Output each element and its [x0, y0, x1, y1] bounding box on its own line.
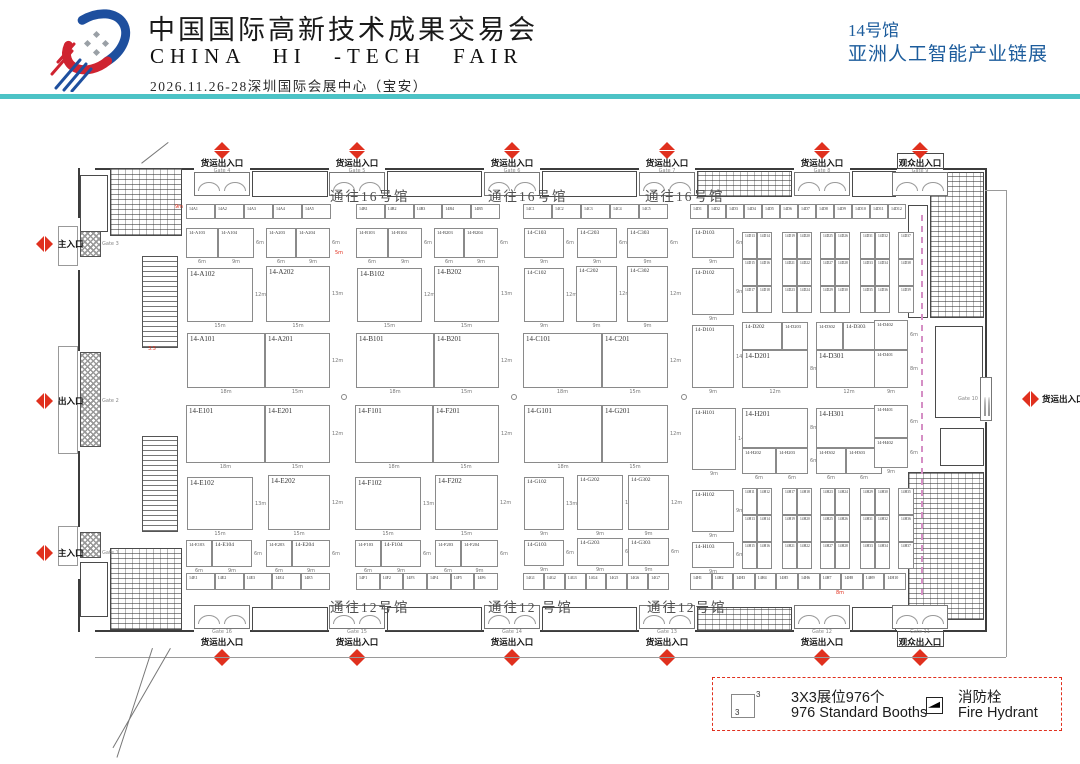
gate-marker-gate-16 [214, 649, 230, 666]
booth-label: 14-E203 [269, 542, 285, 547]
booth-14D37: 14D37 [898, 232, 914, 259]
booth-label: 14D11 [873, 206, 884, 211]
booth-14H31: 14H31 [860, 515, 875, 542]
booth-14-H103: 14-H103 [692, 542, 734, 568]
fire-hydrant-icon [926, 697, 943, 714]
dimension-label: 9m [641, 531, 657, 537]
booth-14-C303: 14-C303 [627, 228, 668, 258]
booth-14-E102: 14-E102 [187, 477, 253, 530]
booth-14H24: 14H24 [835, 488, 850, 515]
booth-14D30: 14D30 [835, 286, 850, 313]
booth-label: 14H15 [745, 544, 755, 548]
room-topleft-lobby [80, 175, 108, 232]
booth-14-B204: 14-B204 [464, 228, 498, 258]
booth-label: 14B4 [445, 206, 454, 211]
booth-14D39: 14D39 [898, 286, 914, 313]
booth-14H34: 14H34 [875, 542, 890, 569]
dimension-label: 15m [459, 323, 475, 329]
booth-14F1: 14F1 [356, 573, 380, 590]
booth-label: 14-G303 [631, 540, 651, 546]
booth-14D5: 14D5 [762, 204, 780, 219]
booth-14-A202: 14-A202 [266, 266, 330, 322]
booth-14B4: 14B4 [442, 204, 471, 219]
booth-14H2: 14H2 [712, 573, 734, 590]
booth-14D31: 14D31 [860, 232, 875, 259]
dimension-label: 12m [670, 291, 681, 297]
red-dimension-label: 9m [175, 204, 183, 210]
dimension-label: 15m [380, 531, 396, 537]
booth-14-D203: 14-D203 [782, 322, 808, 350]
dimension-label: 9m [592, 531, 608, 537]
booth-14D19: 14D19 [782, 232, 797, 259]
wall-top-segment [695, 168, 794, 170]
dimension-label: 6m [619, 240, 627, 246]
booth-label: 14-A204 [299, 230, 315, 235]
booth-label: 14-D101 [695, 327, 715, 333]
booth-14H20: 14H20 [797, 515, 812, 542]
dimension-label: 13m [423, 501, 434, 507]
booth-label: 14-G102 [527, 479, 547, 485]
dimension-label: 15m [290, 389, 306, 395]
booth-label: 14H25 [823, 517, 833, 521]
booth-14-H202: 14-H202 [742, 448, 776, 474]
booth-14A3: 14A3 [244, 204, 273, 219]
booth-label: 14-A203 [269, 230, 285, 235]
booth-label: 14D39 [901, 288, 911, 292]
booth-label: 14H23 [823, 490, 833, 494]
booth-label: 14E5 [304, 575, 312, 580]
booth-label: 14H31 [863, 517, 873, 521]
booth-label: 14-C302 [630, 268, 649, 274]
booth-label: 14-A104 [221, 230, 237, 235]
booth-14D13: 14D13 [742, 232, 757, 259]
booth-label: 14-E101 [189, 407, 213, 415]
booth-14E3: 14E3 [244, 573, 273, 590]
booth-14F6: 14F6 [474, 573, 498, 590]
booth-label: 14D15 [745, 261, 755, 265]
booth-14A2: 14A2 [215, 204, 244, 219]
booth-label: 14-B204 [467, 230, 483, 235]
booth-label: 14H5 [779, 575, 788, 580]
booth-14H37: 14H37 [898, 542, 914, 569]
booth-14H17: 14H17 [782, 488, 797, 515]
booth-14-D201: 14-D201 [742, 350, 808, 388]
red-dimension-label: 8m [836, 590, 844, 596]
corridor-label: 通往12号馆 [330, 596, 410, 616]
booth-label: 14H21 [785, 544, 795, 548]
dimension-label: 18m [555, 389, 571, 395]
booth-14H5: 14H5 [776, 573, 798, 590]
booth-14D32: 14D32 [875, 232, 890, 259]
corridor-label: 通往12号馆 [647, 596, 727, 616]
booth-label: 14D28 [838, 261, 848, 265]
outer-dimension-line-bottom [95, 657, 1006, 658]
booth-label: 14D32 [878, 234, 888, 238]
booth-14H8: 14H8 [841, 573, 863, 590]
stairs-left-lower [142, 436, 178, 532]
booth-label: 14D36 [878, 288, 888, 292]
booth-14-B202: 14-B202 [434, 266, 499, 322]
booth-label: 14D16 [760, 261, 770, 265]
booth-label: 14-A201 [268, 335, 293, 343]
booth-label: 14C4 [613, 206, 622, 211]
dimension-label: 9m [536, 323, 552, 329]
booth-14H15: 14H15 [742, 542, 757, 569]
booth-label: 14D20 [800, 234, 810, 238]
booth-label: 14H1 [693, 575, 702, 580]
booth-label: 14-B203 [437, 230, 453, 235]
booth-14D8: 14D8 [816, 204, 834, 219]
booth-14-H302: 14-H302 [816, 448, 846, 474]
booth-14-C101: 14-C101 [523, 333, 602, 388]
booth-label: 14-H402 [877, 440, 893, 445]
booth-14H7: 14H7 [820, 573, 842, 590]
booth-label: 14H4 [758, 575, 767, 580]
booth-label: 14-G302 [631, 477, 651, 483]
booth-label: 14-H401 [877, 407, 893, 412]
booth-14-C202: 14-C202 [576, 266, 617, 322]
booth-label: 14-D302 [819, 324, 835, 329]
booth-label: 14B5 [474, 206, 483, 211]
gate-number-bottom: Gate 14 [492, 629, 532, 635]
dimension-label: 8m [910, 366, 918, 372]
room-bottomleft-lobby [80, 562, 108, 617]
room-bottom-5 [852, 607, 896, 631]
booth-14H12: 14H12 [757, 488, 772, 515]
booth-14A5: 14A5 [302, 204, 331, 219]
booth-label: 14-E201 [268, 407, 292, 415]
booth-label: 14D9 [837, 206, 846, 211]
structural-column [341, 394, 347, 400]
booth-14-G101: 14-G101 [524, 405, 602, 463]
booth-label: 14D8 [819, 206, 828, 211]
dimension-label: 12m [670, 431, 681, 437]
booth-label: 14E1 [189, 575, 197, 580]
booth-label: 14D37 [901, 234, 911, 238]
booth-label: 14E2 [218, 575, 226, 580]
booth-14-H203: 14-H203 [776, 448, 808, 474]
booth-14H16: 14H16 [757, 542, 772, 569]
booth-label: 14H29 [863, 490, 873, 494]
booth-14H28: 14H28 [835, 542, 850, 569]
booth-label: 14D29 [823, 288, 833, 292]
booth-label: 14-C103 [527, 230, 546, 236]
dimension-label: 12m [671, 500, 682, 506]
booth-14G2: 14G2 [544, 573, 565, 590]
booth-label: 14-H203 [779, 450, 795, 455]
booth-14-F101: 14-F101 [355, 405, 433, 463]
booth-label: 14D4 [747, 206, 756, 211]
dimension-label: 12m [501, 431, 512, 437]
dimension-label: 9m [397, 259, 413, 265]
booth-label: 14H18 [800, 490, 810, 494]
booth-label: 14A2 [218, 206, 227, 211]
booth-14-C201: 14-C201 [602, 333, 668, 388]
booth-14D10: 14D10 [852, 204, 870, 219]
booth-14-E201: 14-E201 [265, 405, 330, 463]
dimension-label: 13m [332, 291, 343, 297]
booth-label: 14H16 [760, 544, 770, 548]
gate-number-bottom: Gate 13 [647, 629, 687, 635]
booth-label: 14-B102 [360, 270, 385, 278]
dimension-label: 9m [640, 323, 656, 329]
booth-label: 14B2 [388, 206, 397, 211]
dimension-label: 12m [500, 500, 511, 506]
booth-14B1: 14B1 [356, 204, 385, 219]
booth-14-G103: 14-G103 [524, 540, 564, 566]
booth-14D16: 14D16 [757, 259, 772, 286]
booth-14D18: 14D18 [757, 286, 772, 313]
dimension-label: 9m [705, 389, 721, 395]
booth-label: 14-C203 [580, 230, 599, 236]
booth-14-B201: 14-B201 [434, 333, 499, 388]
booth-label: 14F1 [359, 575, 367, 580]
dimension-label: 6m [194, 259, 210, 265]
gate-label-bottom: 货运出入口 [319, 636, 395, 648]
booth-14D9: 14D9 [834, 204, 852, 219]
booth-14-H402: 14-H402 [874, 438, 908, 468]
booth-label: 14H28 [838, 544, 848, 548]
wall-left-segment [78, 270, 80, 351]
booth-14-G203: 14-G203 [577, 538, 623, 566]
booth-label: 14H36 [901, 517, 911, 521]
booth-14D12: 14D12 [888, 204, 906, 219]
booth-14-D402: 14-D402 [874, 320, 908, 350]
booth-14E2: 14E2 [215, 573, 244, 590]
booth-14-G201: 14-G201 [602, 405, 668, 463]
booth-14H6: 14H6 [798, 573, 820, 590]
booth-label: 14A5 [305, 206, 314, 211]
booth-14G7: 14G7 [648, 573, 669, 590]
booth-label: 14-C101 [526, 335, 551, 343]
legend-booths-en: 976 Standard Booths [791, 705, 927, 721]
dimension-label: 6m [910, 450, 918, 456]
dimension-label: 6m [364, 259, 380, 265]
booth-14D25: 14D25 [820, 232, 835, 259]
wall-bottom-segment [943, 630, 985, 632]
booth-14-A104: 14-A104 [218, 228, 254, 258]
booth-14D27: 14D27 [820, 259, 835, 286]
wall-top-segment [540, 168, 639, 170]
dimension-label: 9m [228, 259, 244, 265]
booth-label: 14-H201 [745, 410, 770, 418]
booth-14H29: 14H29 [860, 488, 875, 515]
room-right-mid2 [940, 428, 984, 466]
dimension-label: 15m [212, 323, 228, 329]
booth-label: 14H2 [715, 575, 724, 580]
booth-label: 14G6 [630, 575, 639, 580]
dimension-label: 15m [291, 531, 307, 537]
gate-marker-gate-1 [36, 545, 53, 561]
booth-label: 14-F103 [358, 542, 373, 547]
booth-label: 14-C303 [630, 230, 649, 236]
booth-label: 14-A102 [190, 270, 215, 278]
standard-booth-icon: 3 [731, 694, 755, 718]
booth-label: 14-D402 [877, 322, 893, 327]
booth-14-E101: 14-E101 [186, 405, 265, 463]
dimension-label: 9m [589, 323, 605, 329]
booth-label: 14-H303 [849, 450, 865, 455]
booth-14-C302: 14-C302 [627, 266, 668, 322]
booth-14-C203: 14-C203 [577, 228, 617, 258]
dimension-label: 9m [536, 531, 552, 537]
dimension-label: 12m [332, 358, 343, 364]
dimension-label: 13m [501, 291, 512, 297]
booth-14H21: 14H21 [782, 542, 797, 569]
booth-label: 14D34 [878, 261, 888, 265]
booth-label: 14D10 [855, 206, 866, 211]
booth-label: 14-A202 [269, 268, 294, 276]
booth-14H35: 14H35 [898, 488, 914, 515]
booth-label: 14B1 [359, 206, 368, 211]
dimension-label: 6m [424, 240, 432, 246]
booth-label: 14-B201 [437, 335, 462, 343]
legend-box: 3 3 3X3展位976个 976 Standard Booths 消防栓 Fi… [712, 677, 1062, 731]
booth-14-B102: 14-B102 [357, 268, 422, 322]
booth-label: 14-G103 [527, 542, 547, 548]
booth-label: 14-D102 [695, 270, 715, 276]
booth-label: 14-G201 [605, 407, 630, 415]
booth-14H36: 14H36 [898, 515, 914, 542]
booth-label: 14C2 [555, 206, 564, 211]
booth-label: 14A1 [189, 206, 198, 211]
booth-label: 14H24 [838, 490, 848, 494]
dimension-label: 6m [856, 475, 872, 481]
dimension-label: 13m [255, 501, 266, 507]
booth-14D29: 14D29 [820, 286, 835, 313]
booth-14-H201: 14-H201 [742, 408, 808, 448]
booth-14-G102: 14-G102 [524, 477, 564, 530]
booth-label: 14-G101 [527, 407, 552, 415]
booth-14H30: 14H30 [875, 488, 890, 515]
booth-14H32: 14H32 [875, 515, 890, 542]
legend-hydrant-cn: 消防栓 [958, 686, 1002, 707]
dimension-label: 12m [332, 500, 343, 506]
booth-label: 14-H202 [745, 450, 761, 455]
dimension-label: 6m [256, 240, 264, 246]
dimension-label: 6m [500, 240, 508, 246]
booth-14D15: 14D15 [742, 259, 757, 286]
booth-label: 14-F104 [384, 542, 403, 548]
wall-right-segment [985, 422, 987, 632]
room-bottom-1 [252, 607, 328, 631]
booth-label: 14H20 [800, 517, 810, 521]
booth-14-F203: 14-F203 [435, 540, 461, 567]
booth-14D11: 14D11 [870, 204, 888, 219]
booth-label: 14-E204 [295, 542, 314, 548]
dimension-label: 6m [273, 259, 289, 265]
dimension-label: 9m [473, 259, 489, 265]
booth-label: 14B3 [417, 206, 426, 211]
booth-label: 14D25 [823, 234, 833, 238]
booth-label: 14G4 [589, 575, 598, 580]
room-top-5 [852, 171, 896, 197]
booth-14D20: 14D20 [797, 232, 812, 259]
booth-14-E203: 14-E203 [266, 540, 292, 567]
booth-label: 14D27 [823, 261, 833, 265]
booth-14-F102: 14-F102 [355, 477, 421, 530]
gate-label-bottom: 货运出入口 [784, 636, 860, 648]
dimension-label: 12m [255, 292, 266, 298]
dimension-label: 6m [910, 332, 918, 338]
outer-line-right [1006, 190, 1007, 657]
booth-14H9: 14H9 [863, 573, 885, 590]
dimension-label: 6m [566, 240, 574, 246]
outer-line-top-connector [985, 190, 1006, 191]
gate-number-bottom: Gate 11 [900, 629, 940, 635]
gate-label-bottom: 货运出入口 [184, 636, 260, 648]
booth-14-F202: 14-F202 [435, 475, 498, 530]
booth-label: 14F4 [430, 575, 438, 580]
dimension-label: 12m [841, 389, 857, 395]
booth-14B2: 14B2 [385, 204, 414, 219]
booth-label: 14C5 [642, 206, 651, 211]
booth-label: 14D30 [838, 288, 848, 292]
booth-14-G202: 14-G202 [577, 475, 623, 530]
booth-label: 14H32 [878, 517, 888, 521]
booth-14-B104: 14-B104 [388, 228, 422, 258]
booth-label: 14A4 [276, 206, 285, 211]
wall-bottom-segment [95, 630, 194, 632]
booth-label: 14H8 [844, 575, 853, 580]
dimension-label: 9m [705, 533, 721, 539]
booth-14H3: 14H3 [733, 573, 755, 590]
booth-label: 14-H103 [695, 544, 715, 550]
booth-label: 14D14 [760, 234, 770, 238]
dimension-label: 9m [883, 469, 899, 475]
dimension-label: 18m [555, 464, 571, 470]
booth-14F2: 14F2 [380, 573, 404, 590]
booth-14D1: 14D1 [690, 204, 708, 219]
booth-label: 14C3 [584, 206, 593, 211]
dimension-label: 15m [459, 531, 475, 537]
booth-14H19: 14H19 [782, 515, 797, 542]
gate-number-left: Gate 2 [102, 398, 119, 404]
booth-label: 14H19 [785, 517, 795, 521]
booth-14D34: 14D34 [875, 259, 890, 286]
booth-14-F204: 14-F204 [461, 540, 498, 567]
booth-label: 14-E104 [215, 542, 234, 548]
booth-label: 14D18 [760, 288, 770, 292]
booth-14H26: 14H26 [835, 515, 850, 542]
stairs-left-upper [142, 256, 178, 348]
booth-label: 14D22 [800, 261, 810, 265]
booth-14A4: 14A4 [273, 204, 302, 219]
booth-14G1: 14G1 [523, 573, 544, 590]
gate-marker-gate-12 [814, 649, 830, 666]
booth-label: 14D24 [800, 288, 810, 292]
corridor-label: 通往16号馆 [488, 185, 568, 205]
booth-14-B203: 14-B203 [434, 228, 464, 258]
booth-14G4: 14G4 [586, 573, 607, 590]
booth-14C4: 14C4 [610, 204, 639, 219]
booth-label: 14-E103 [189, 542, 205, 547]
dimension-label: 9m [883, 389, 899, 395]
gate-label-left: 主入口 [58, 238, 84, 250]
booth-14-A201: 14-A201 [265, 333, 330, 388]
booth-14D14: 14D14 [757, 232, 772, 259]
dimension-label: 6m [784, 475, 800, 481]
booth-14-E103: 14-E103 [186, 540, 212, 567]
booth-14-D301: 14-D301 [816, 350, 882, 388]
dimension-label: 18m [386, 464, 402, 470]
booth-label: 14-F202 [438, 477, 462, 485]
booth-label: 14A3 [247, 206, 256, 211]
booth-label: 14D26 [838, 234, 848, 238]
booth-label: 14D7 [801, 206, 810, 211]
booth-14H22: 14H22 [797, 542, 812, 569]
booth-14G3: 14G3 [565, 573, 586, 590]
